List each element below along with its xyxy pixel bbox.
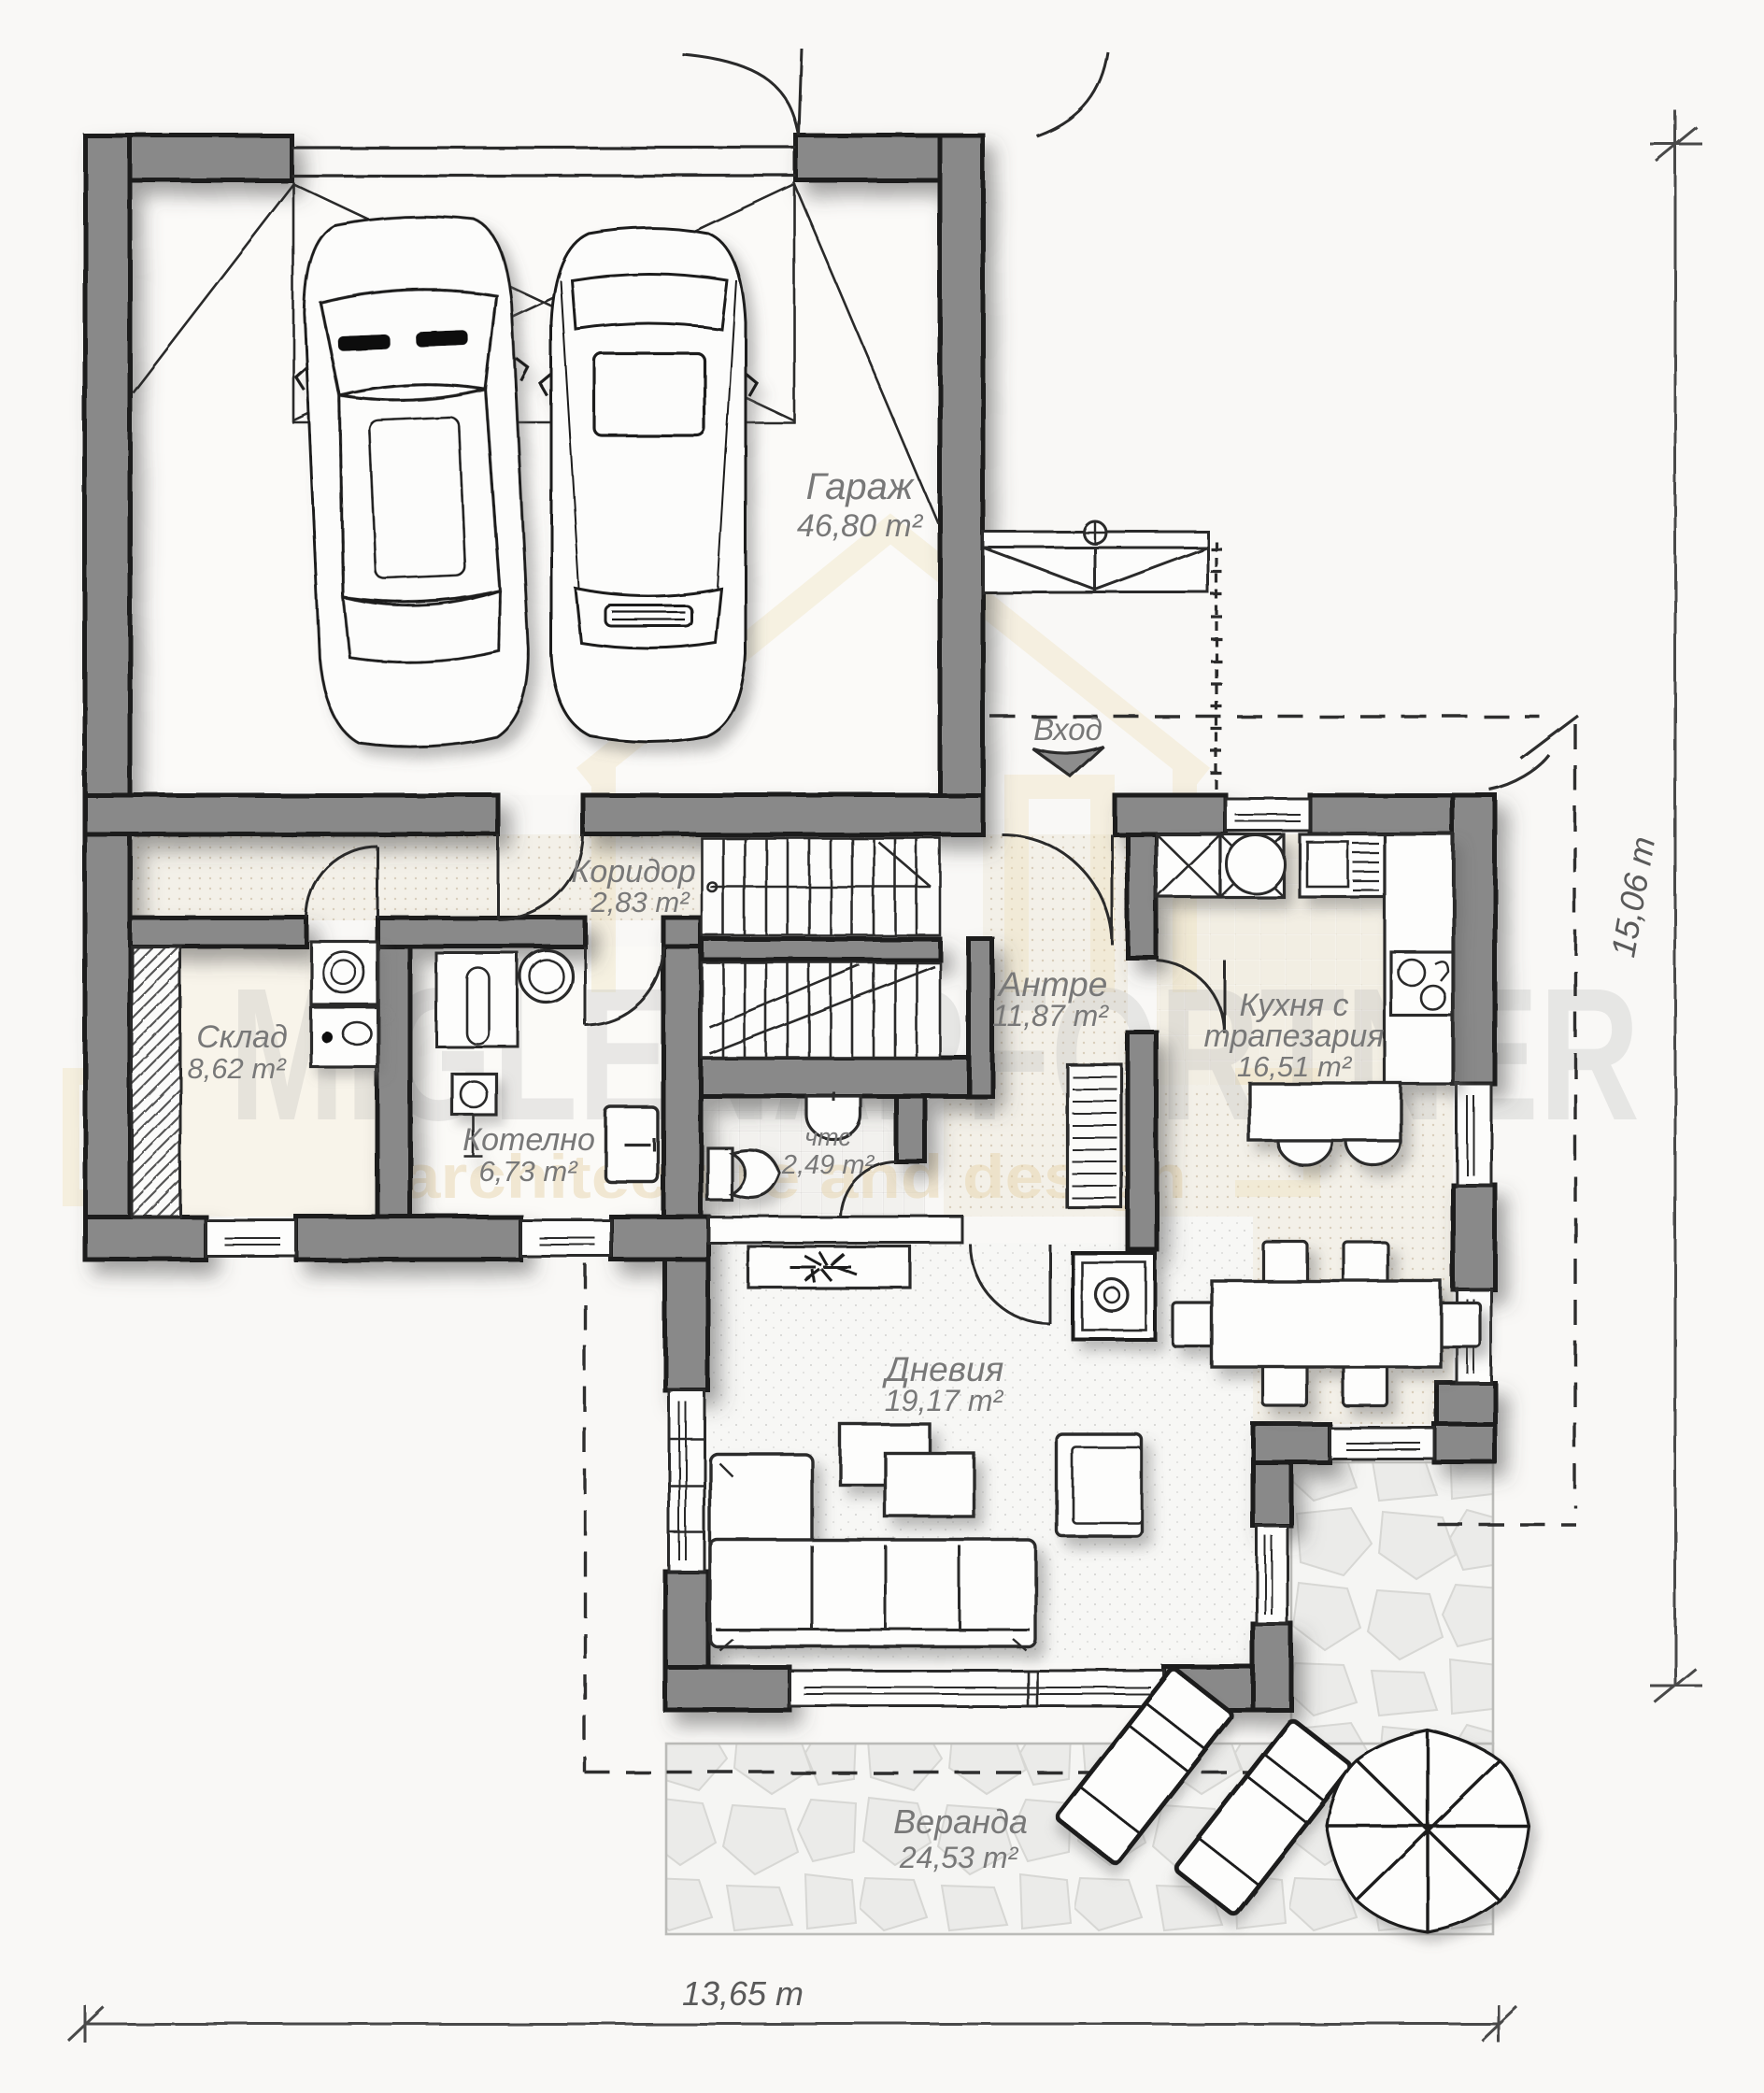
svg-text:трапезария: трапезария xyxy=(1204,1018,1385,1054)
svg-text:2,83 m²: 2,83 m² xyxy=(590,886,690,918)
svg-text:16,51 m²: 16,51 m² xyxy=(1237,1050,1353,1083)
svg-text:Котелно: Котелно xyxy=(462,1122,595,1158)
svg-text:24,53 m²: 24,53 m² xyxy=(899,1841,1019,1874)
svg-text:чтс: чтс xyxy=(804,1123,851,1151)
svg-text:13,65 m: 13,65 m xyxy=(682,1974,804,2013)
svg-text:Антре: Антре xyxy=(997,965,1108,1004)
svg-text:Веранда: Веранда xyxy=(893,1802,1028,1841)
svg-text:Коридор: Коридор xyxy=(571,854,695,890)
svg-text:46,80 m²: 46,80 m² xyxy=(797,508,924,544)
svg-text:8,62 m²: 8,62 m² xyxy=(187,1052,287,1085)
svg-text:Дневия: Дневия xyxy=(882,1350,1004,1388)
svg-text:2,49 m²: 2,49 m² xyxy=(781,1150,875,1180)
svg-text:Склад: Склад xyxy=(196,1019,287,1055)
svg-text:19,17 m²: 19,17 m² xyxy=(885,1384,1004,1417)
svg-text:Вход: Вход xyxy=(1033,712,1102,747)
svg-text:11,87 m²: 11,87 m² xyxy=(992,999,1109,1032)
svg-text:6,73 m²: 6,73 m² xyxy=(478,1155,578,1188)
svg-text:Гараж: Гараж xyxy=(806,466,915,507)
